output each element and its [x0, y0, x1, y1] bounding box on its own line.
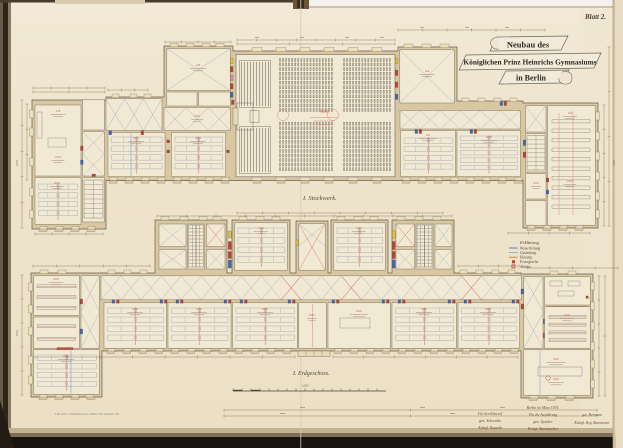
svg-text:123: 123	[426, 134, 431, 137]
svg-text:170: 170	[56, 110, 61, 113]
svg-text:Königl. Baurath: Königl. Baurath	[477, 426, 502, 430]
svg-text:Königlichen Prinz Heinrichs Gy: Königlichen Prinz Heinrichs Gymnasiums	[463, 58, 596, 67]
svg-text:I. Stockwerk.: I. Stockwerk.	[302, 195, 337, 202]
svg-text:124: 124	[425, 70, 430, 73]
svg-text:125: 125	[196, 64, 201, 67]
svg-text:1:200: 1:200	[302, 384, 309, 388]
svg-text:gez. Spieker: gez. Spieker	[533, 419, 553, 424]
svg-text:Für den Entwurf: Für den Entwurf	[477, 412, 503, 416]
svg-text:Wasserleitung: Wasserleitung	[520, 246, 540, 250]
svg-text:Erklärung: Erklärung	[519, 240, 540, 245]
svg-text:Königl. Bauinspektor: Königl. Bauinspektor	[527, 427, 559, 431]
svg-text:Abtritte: Abtritte	[519, 265, 531, 269]
svg-text:Für die Ausführung: Für die Ausführung	[528, 413, 557, 417]
svg-text:Neubau des: Neubau des	[507, 40, 550, 50]
svg-text:Königl. Reg. Baumeister: Königl. Reg. Baumeister	[573, 421, 610, 425]
svg-text:I. Erdgeschoss.: I. Erdgeschoss.	[292, 371, 330, 377]
svg-text:Blatt 2.: Blatt 2.	[584, 13, 606, 21]
svg-text:in Berlin: in Berlin	[516, 74, 547, 83]
svg-text:gez. Hermann: gez. Hermann	[582, 413, 602, 417]
svg-text:Feuergeschr.: Feuergeschr.	[519, 260, 539, 264]
svg-text:Gasleitung: Gasleitung	[520, 251, 536, 255]
svg-text:Heizung: Heizung	[519, 256, 532, 260]
svg-text:gez. Schwatlo: gez. Schwatlo	[479, 418, 501, 423]
svg-text:Aula: Aula	[319, 109, 329, 114]
svg-text:Berlin im März 1874.: Berlin im März 1874.	[527, 406, 560, 410]
svg-text:122: 122	[568, 112, 573, 115]
